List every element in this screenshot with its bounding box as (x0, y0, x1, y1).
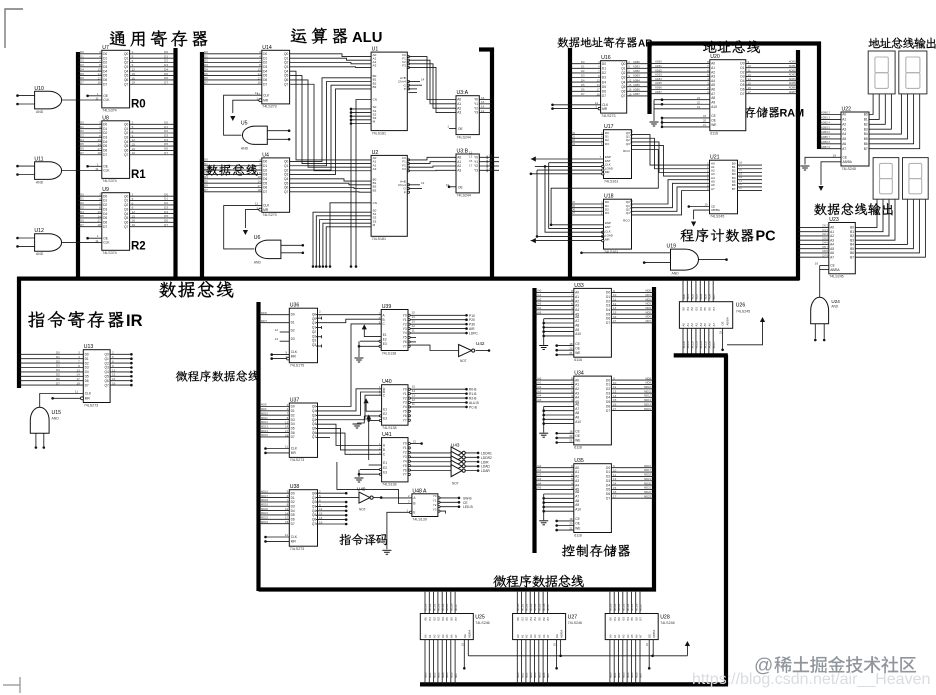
svg-text:14: 14 (412, 389, 416, 393)
svg-text:MCD6: MCD6 (450, 603, 454, 611)
svg-text:ADB5: ADB5 (633, 83, 640, 87)
svg-text:MCD7: MCD7 (712, 341, 716, 349)
svg-text:D3: D3 (291, 337, 295, 341)
svg-text:74LS138: 74LS138 (382, 483, 396, 487)
svg-text:Y0: Y0 (403, 387, 407, 391)
svg-text:11: 11 (285, 533, 288, 537)
svg-text:74LS161: 74LS161 (604, 179, 618, 183)
svg-text:MD12: MD12 (644, 394, 651, 398)
svg-text:D1: D1 (572, 135, 576, 139)
svg-text:Q1: Q1 (312, 321, 316, 325)
svg-text:D7: D7 (80, 223, 84, 227)
svg-text:Q3: Q3 (284, 65, 288, 69)
svg-text:11: 11 (255, 201, 258, 205)
svg-text:U3:B: U3:B (457, 149, 469, 155)
svg-text:Y4: Y4 (403, 331, 407, 335)
svg-text:U16: U16 (601, 55, 611, 61)
svg-text:MD6: MD6 (708, 293, 712, 299)
svg-text:MCD5: MCD5 (630, 603, 634, 611)
svg-text:MCD1: MCD1 (613, 603, 617, 611)
svg-text:P: P (404, 190, 406, 194)
svg-text:D4: D4 (606, 483, 610, 487)
svg-text:A4: A4 (575, 396, 579, 400)
svg-text:15: 15 (613, 398, 617, 402)
svg-text:13: 13 (412, 393, 416, 397)
svg-text:Q1: Q1 (621, 67, 625, 71)
svg-text:RAM: RAM (780, 108, 805, 120)
svg-text:B3: B3 (373, 85, 377, 89)
svg-text:LDDR2: LDDR2 (481, 456, 492, 460)
svg-text:74LS374: 74LS374 (102, 109, 116, 113)
svg-text:ADB1: ADB1 (633, 65, 640, 69)
svg-text:MD0: MD0 (682, 293, 686, 299)
svg-text:U24: U24 (831, 299, 840, 304)
svg-text:D7: D7 (581, 92, 585, 96)
svg-text:Q7: Q7 (284, 82, 288, 86)
svg-text:D2: D2 (204, 166, 208, 170)
svg-text:MD13: MD13 (644, 398, 651, 402)
svg-text:15: 15 (628, 83, 631, 87)
svg-text:74LS138: 74LS138 (382, 351, 396, 355)
svg-text:MCD1: MCD1 (428, 603, 432, 611)
svg-text:MD0: MD0 (516, 672, 520, 678)
svg-text:D1: D1 (606, 470, 610, 474)
svg-text:U1: U1 (372, 47, 379, 53)
svg-text:ALU: ALU (352, 30, 382, 46)
svg-text:MD11: MD11 (261, 416, 268, 420)
svg-text:13: 13 (76, 368, 80, 372)
svg-text:Q2: Q2 (105, 361, 109, 365)
svg-text:U33: U33 (574, 283, 584, 289)
svg-text:10: 10 (613, 293, 617, 297)
svg-text:A3: A3 (373, 64, 377, 68)
svg-text:UA5: UA5 (536, 398, 542, 402)
svg-text:14: 14 (597, 83, 600, 87)
svg-text:MD10: MD10 (261, 411, 268, 415)
svg-text:D1: D1 (103, 127, 107, 131)
svg-text:Y1: Y1 (474, 102, 478, 106)
svg-text:MCD5: MCD5 (445, 603, 449, 611)
svg-text:16: 16 (481, 100, 485, 104)
svg-text:MD9: MD9 (646, 381, 652, 385)
svg-text:Q3: Q3 (105, 366, 109, 370)
svg-text:14: 14 (421, 78, 425, 82)
svg-text:D7: D7 (85, 383, 89, 387)
svg-text:LED-B: LED-B (463, 505, 474, 509)
svg-text:18: 18 (703, 114, 706, 118)
svg-text:D7: D7 (606, 409, 610, 413)
svg-text:MCD4: MCD4 (699, 341, 703, 349)
svg-text:OE: OE (648, 634, 652, 638)
svg-text:11: 11 (75, 389, 78, 393)
svg-text:16: 16 (319, 516, 323, 520)
svg-text:D6: D6 (602, 90, 606, 94)
svg-text:U28: U28 (660, 615, 670, 621)
svg-text:UA3: UA3 (536, 477, 542, 481)
svg-text:MCD7: MCD7 (546, 603, 550, 611)
svg-text:Y5: Y5 (403, 336, 407, 340)
svg-text:P10: P10 (469, 314, 475, 318)
svg-text:74LS273: 74LS273 (84, 403, 98, 407)
svg-text:Q7: Q7 (284, 190, 288, 194)
svg-text:11: 11 (613, 385, 616, 389)
svg-text:B5: B5 (703, 307, 707, 311)
svg-text:Q5: Q5 (284, 181, 288, 185)
svg-text:MD10: MD10 (644, 385, 651, 389)
svg-text:F3: F3 (402, 64, 406, 68)
svg-text:ADB2: ADB2 (633, 69, 640, 73)
svg-text:D0: D0 (606, 378, 610, 382)
svg-text:UA2: UA2 (536, 385, 542, 389)
svg-text:D7: D7 (291, 435, 295, 439)
svg-text:MD6: MD6 (542, 672, 546, 678)
svg-text:13: 13 (739, 179, 742, 183)
svg-text:17: 17 (739, 164, 742, 168)
svg-text:AD62: AD62 (655, 68, 662, 72)
svg-text:MCD3: MCD3 (622, 603, 626, 611)
svg-text:Q0: Q0 (621, 62, 625, 66)
svg-text:U20: U20 (710, 54, 720, 60)
svg-text:AD63: AD63 (655, 73, 662, 77)
svg-text:A0: A0 (575, 378, 579, 382)
svg-text:15: 15 (319, 512, 323, 516)
svg-text:UA5: UA5 (536, 310, 542, 314)
svg-text:D6: D6 (204, 76, 208, 80)
svg-text:U41: U41 (382, 432, 392, 438)
svg-text:D6: D6 (606, 492, 610, 496)
svg-text:74LS161: 74LS161 (604, 250, 618, 254)
svg-text:74LS273: 74LS273 (262, 105, 276, 109)
svg-text:UA0: UA0 (536, 464, 542, 468)
svg-text:E1: E1 (383, 461, 387, 465)
svg-text:D0: D0 (80, 50, 84, 54)
svg-text:17: 17 (257, 76, 261, 80)
svg-text:Q4: Q4 (621, 80, 625, 84)
svg-text:Q1: Q1 (284, 164, 288, 168)
svg-text:ADB4 6: ADB4 6 (821, 130, 830, 134)
svg-text:13: 13 (257, 175, 261, 179)
svg-text:17: 17 (97, 76, 101, 80)
svg-text:MD3: MD3 (695, 293, 699, 299)
svg-text:12: 12 (132, 68, 136, 72)
svg-text:13: 13 (630, 203, 633, 207)
svg-text:D4: D4 (606, 396, 610, 400)
svg-text:18: 18 (739, 160, 742, 164)
svg-text:MR: MR (263, 208, 269, 212)
svg-text:A4: A4 (575, 308, 579, 312)
svg-text:MD6: MD6 (450, 672, 454, 678)
svg-text:MD16: MD16 (261, 489, 268, 493)
svg-text:74LS273: 74LS273 (262, 213, 276, 217)
svg-text:6116: 6116 (574, 358, 582, 362)
svg-text:17: 17 (597, 88, 600, 92)
svg-text:D3: D3 (56, 364, 60, 368)
svg-text:ADB2 4: ADB2 4 (821, 121, 830, 125)
svg-text:B3: B3 (864, 127, 868, 131)
svg-text:A1: A1 (711, 66, 715, 70)
svg-text:RCO: RCO (623, 149, 630, 153)
svg-text:Y4: Y4 (403, 405, 407, 409)
svg-text:Q3: Q3 (124, 65, 128, 69)
svg-text:MR: MR (263, 98, 269, 102)
svg-text:U12: U12 (34, 228, 44, 234)
svg-text:U48 A: U48 A (412, 488, 427, 494)
svg-text:U9: U9 (102, 187, 109, 193)
svg-text:19: 19 (815, 262, 819, 266)
svg-text:Y2: Y2 (403, 396, 407, 400)
svg-text:U25: U25 (475, 615, 485, 621)
svg-text:D5: D5 (85, 375, 89, 379)
svg-text:22: 22 (697, 101, 700, 105)
svg-text:Y6: Y6 (403, 468, 407, 472)
svg-text:AB/BA: AB/BA (467, 630, 471, 638)
svg-text:D6: D6 (85, 379, 89, 383)
svg-text:AD82: AD82 (789, 68, 796, 72)
svg-text:6116: 6116 (574, 533, 582, 537)
svg-text:MD3: MD3 (437, 672, 441, 678)
svg-text:18: 18 (489, 154, 492, 158)
svg-text:MD4: MD4 (441, 672, 445, 678)
svg-text:Y1: Y1 (433, 499, 437, 503)
svg-text:10: 10 (748, 64, 752, 68)
svg-text:MD7: MD7 (712, 293, 716, 299)
svg-text:6116: 6116 (574, 446, 582, 450)
svg-text:12: 12 (739, 182, 742, 186)
svg-text:D6: D6 (164, 76, 168, 80)
svg-text:74LS246: 74LS246 (475, 621, 489, 625)
svg-text:12: 12 (489, 167, 492, 171)
svg-text:Y3: Y3 (474, 111, 478, 115)
svg-text:23: 23 (697, 96, 700, 100)
svg-text:R1-B: R1-B (469, 392, 477, 396)
svg-text:ADB0: ADB0 (633, 60, 640, 64)
svg-text:18: 18 (97, 81, 101, 85)
svg-text:D7: D7 (291, 522, 295, 526)
svg-text:LDIR: LDIR (481, 460, 489, 464)
svg-text:CE: CE (843, 156, 847, 160)
svg-text:MCD2: MCD2 (690, 341, 694, 349)
svg-text:Y6: Y6 (403, 414, 407, 418)
svg-text:15: 15 (132, 214, 136, 218)
svg-text:UA4: UA4 (536, 481, 542, 485)
svg-text:D4: D4 (204, 67, 208, 71)
svg-text:D0: D0 (263, 52, 267, 56)
svg-text:MCD3: MCD3 (529, 603, 533, 611)
svg-text:U42: U42 (476, 341, 485, 346)
svg-text:B6: B6 (864, 142, 868, 146)
svg-text:ADB4: ADB4 (633, 78, 640, 82)
svg-text:Q7: Q7 (105, 383, 109, 387)
svg-text:MD3: MD3 (622, 672, 626, 678)
svg-text:ADB7 9: ADB7 9 (821, 145, 830, 149)
svg-text:OE: OE (711, 119, 716, 123)
svg-text:Q0: Q0 (312, 491, 316, 495)
svg-text:OE: OE (458, 127, 463, 131)
svg-text:A0: A0 (842, 113, 846, 117)
svg-text:D0: D0 (291, 313, 295, 317)
svg-text:18: 18 (569, 517, 573, 521)
svg-text:AB/BA: AB/BA (711, 208, 720, 212)
svg-text:CLK: CLK (263, 93, 270, 97)
svg-text:U5: U5 (241, 121, 248, 127)
svg-text:MD9: MD9 (261, 407, 267, 411)
svg-text:MD20: MD20 (261, 507, 268, 511)
svg-text:Q3: Q3 (284, 173, 288, 177)
svg-text:NOT: NOT (460, 359, 467, 363)
svg-text:Y3: Y3 (403, 327, 407, 331)
svg-text:ALU-B: ALU-B (469, 401, 480, 405)
svg-text:MD14: MD14 (261, 429, 268, 433)
svg-text:CLK: CLK (291, 447, 298, 451)
svg-text:74LS273: 74LS273 (290, 547, 304, 551)
svg-text:A10: A10 (575, 420, 581, 424)
svg-text:MD14: MD14 (644, 402, 651, 406)
svg-text:MD5: MD5 (538, 672, 542, 678)
svg-text:E3: E3 (383, 417, 387, 421)
svg-text:D5: D5 (164, 214, 168, 218)
svg-text:AIR: AIR (469, 327, 475, 331)
svg-text:WE: WE (575, 351, 580, 355)
svg-text:Q6: Q6 (312, 431, 316, 435)
svg-text:19: 19 (705, 203, 708, 207)
svg-text:CLK: CLK (103, 169, 110, 173)
svg-text:Q7: Q7 (312, 435, 316, 439)
svg-text:D6: D6 (291, 431, 295, 435)
svg-text:D2: D2 (606, 475, 610, 479)
svg-text:21: 21 (569, 351, 573, 355)
svg-text:D2: D2 (291, 329, 295, 333)
svg-text:MD5: MD5 (630, 672, 634, 678)
svg-text:AD80: AD80 (789, 60, 796, 64)
svg-text:Y3: Y3 (403, 401, 407, 405)
svg-text:74LS245: 74LS245 (736, 310, 750, 314)
svg-text:Q6: Q6 (621, 90, 625, 94)
svg-text:14: 14 (739, 175, 742, 179)
svg-text:15: 15 (613, 486, 617, 490)
svg-text:13: 13 (597, 79, 600, 83)
svg-text:13: 13 (285, 507, 289, 511)
svg-text:13: 13 (412, 320, 416, 324)
svg-text:U18: U18 (604, 194, 614, 200)
svg-text:R2: R2 (131, 241, 146, 253)
svg-text:Y4: Y4 (403, 459, 407, 463)
svg-text:D4: D4 (164, 67, 168, 71)
svg-text:MCD2: MCD2 (617, 603, 621, 611)
svg-text:AD84: AD84 (789, 77, 796, 81)
svg-text:MR: MR (605, 170, 610, 174)
svg-text:B7: B7 (639, 617, 643, 621)
svg-text:D7 9: D7 9 (823, 253, 829, 257)
svg-text:D1: D1 (204, 162, 208, 166)
svg-text:D0: D0 (85, 353, 89, 357)
svg-text:12: 12 (319, 507, 323, 511)
svg-text:Y7: Y7 (403, 473, 407, 477)
svg-text:D1: D1 (85, 357, 89, 361)
svg-text:Q2: Q2 (312, 330, 316, 334)
svg-text:Q0: Q0 (312, 405, 316, 409)
svg-text:P20: P20 (469, 318, 475, 322)
svg-text:17: 17 (613, 407, 617, 411)
svg-text:UA5: UA5 (536, 486, 542, 490)
svg-text:D5: D5 (56, 373, 60, 377)
svg-text:D7: D7 (572, 211, 576, 215)
svg-text:A7: A7 (711, 187, 715, 191)
svg-text:D7: D7 (740, 92, 744, 96)
svg-text:D3: D3 (581, 74, 585, 78)
svg-text:D2: D2 (572, 138, 576, 142)
svg-text:MCD1: MCD1 (520, 603, 524, 611)
svg-text:MD7: MD7 (646, 319, 652, 323)
svg-text:A5: A5 (711, 83, 715, 87)
svg-text:MD4: MD4 (533, 672, 537, 678)
svg-text:B1: B1 (864, 118, 868, 122)
svg-text:MCD2: MCD2 (432, 603, 436, 611)
svg-text:D3: D3 (602, 76, 606, 80)
svg-text:D3: D3 (85, 366, 89, 370)
svg-text:PC: PC (756, 229, 777, 245)
svg-text:AB/BA: AB/BA (560, 630, 564, 638)
svg-text:D2: D2 (581, 69, 585, 73)
svg-text:MD15: MD15 (261, 433, 268, 437)
svg-text:16: 16 (112, 377, 116, 381)
svg-text:Y1: Y1 (403, 446, 407, 450)
svg-text:MD7: MD7 (639, 672, 643, 678)
svg-text:MCD5: MCD5 (538, 603, 542, 611)
svg-text:Y0: Y0 (403, 314, 407, 318)
svg-text:15: 15 (739, 171, 742, 175)
svg-text:D2: D2 (56, 359, 60, 363)
svg-text:MCD0: MCD0 (516, 603, 520, 611)
svg-text:16: 16 (628, 88, 631, 92)
svg-text:D0: D0 (164, 50, 168, 54)
svg-text:12: 12 (481, 109, 485, 113)
svg-text:D6: D6 (606, 404, 610, 408)
svg-text:D4 6: D4 6 (823, 241, 829, 245)
svg-text:D4: D4 (606, 308, 610, 312)
svg-text:UA1: UA1 (536, 381, 542, 385)
svg-text:D7: D7 (602, 94, 606, 98)
svg-text:MD5: MD5 (646, 310, 652, 314)
svg-text:18: 18 (76, 382, 80, 386)
svg-text:A2: A2 (575, 299, 579, 303)
svg-text:D4: D4 (80, 67, 84, 71)
svg-text:Q1: Q1 (124, 199, 128, 203)
svg-text:21: 21 (569, 439, 573, 443)
svg-text:WE: WE (575, 439, 580, 443)
svg-text:MD19: MD19 (644, 477, 651, 481)
svg-text:AD64: AD64 (655, 77, 662, 81)
svg-text:MCD4: MCD4 (626, 603, 630, 611)
svg-text:D1: D1 (56, 355, 60, 359)
svg-text:18: 18 (97, 223, 101, 227)
svg-text:6116: 6116 (710, 132, 718, 136)
svg-text:U4: U4 (262, 152, 269, 158)
svg-text:D0: D0 (164, 121, 168, 125)
svg-text:Y1: Y1 (403, 392, 407, 396)
svg-text:A1: A1 (575, 470, 579, 474)
svg-text:Y0: Y0 (433, 494, 437, 498)
svg-text:13: 13 (257, 68, 261, 72)
svg-text:MCD3: MCD3 (695, 341, 699, 349)
svg-text:D3: D3 (263, 65, 267, 69)
svg-text:U26: U26 (736, 303, 746, 309)
svg-text:LDAD: LDAD (481, 465, 490, 469)
svg-text:74LS181: 74LS181 (372, 131, 386, 135)
svg-text:UA3: UA3 (536, 302, 542, 306)
svg-text:Y3: Y3 (474, 169, 478, 173)
svg-text:AD86: AD86 (789, 86, 796, 90)
svg-text:MD8: MD8 (261, 403, 267, 407)
